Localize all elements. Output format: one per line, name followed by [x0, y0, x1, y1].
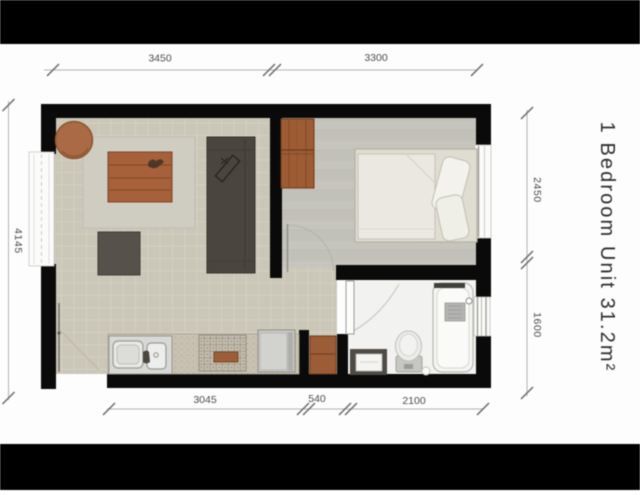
svg-text:1600: 1600	[531, 312, 543, 338]
svg-text:3450: 3450	[148, 53, 172, 65]
svg-text:2100: 2100	[402, 395, 426, 407]
svg-text:4145: 4145	[12, 228, 24, 254]
svg-text:3045: 3045	[193, 394, 217, 406]
svg-text:3300: 3300	[364, 52, 388, 64]
svg-text:2450: 2450	[531, 177, 543, 203]
svg-text:1 Bedroom Unit 31.2m²: 1 Bedroom Unit 31.2m²	[596, 122, 618, 373]
svg-text:540: 540	[308, 393, 326, 405]
